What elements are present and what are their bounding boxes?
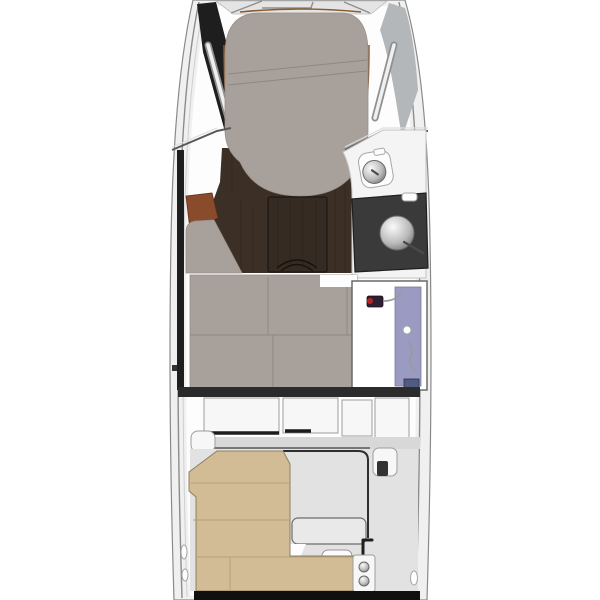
- mid-cabin-berth: [190, 275, 357, 391]
- port-cleat-icon-upper: [181, 545, 187, 559]
- toilet-flush-button: [373, 148, 385, 156]
- aft-bulkhead-band: [178, 387, 420, 397]
- cupholder-icon-bottom: [359, 576, 369, 586]
- v-berth: [224, 9, 369, 196]
- boat-floorplan-drawing: [0, 0, 600, 600]
- port-hull-latch: [172, 365, 177, 371]
- head-compartment: [343, 130, 428, 278]
- aft-panel-left: [204, 398, 279, 434]
- starboard-gunwale-notch: [377, 461, 388, 476]
- cupholder-icon-top: [359, 562, 369, 572]
- wet-bar: [353, 555, 375, 592]
- starboard-cleat-icon: [411, 571, 418, 585]
- vanity: [352, 193, 428, 272]
- boat-floorplan-canvas: [0, 0, 600, 600]
- companionway: [178, 387, 420, 452]
- cockpit-step-strip: [194, 437, 420, 449]
- v-berth-mattress: [225, 13, 368, 196]
- aft-panel-side: [375, 398, 409, 438]
- engine-hatch: [292, 518, 366, 544]
- dinette-table: [268, 197, 327, 272]
- shower-mixer-red-knob: [367, 298, 373, 304]
- aft-panel-middle: [283, 398, 338, 433]
- port-hull-window-stripe: [177, 150, 184, 390]
- shower-drain-dot: [403, 326, 411, 334]
- step-corner-pad: [191, 431, 215, 452]
- cockpit: [189, 448, 418, 592]
- shower-stall: [352, 281, 427, 390]
- aft-panel-right: [342, 400, 372, 436]
- transom-strip: [194, 591, 420, 600]
- soap-dish: [402, 193, 417, 201]
- port-cleat-icon-lower: [182, 569, 188, 581]
- shower-wall-panel: [395, 287, 421, 386]
